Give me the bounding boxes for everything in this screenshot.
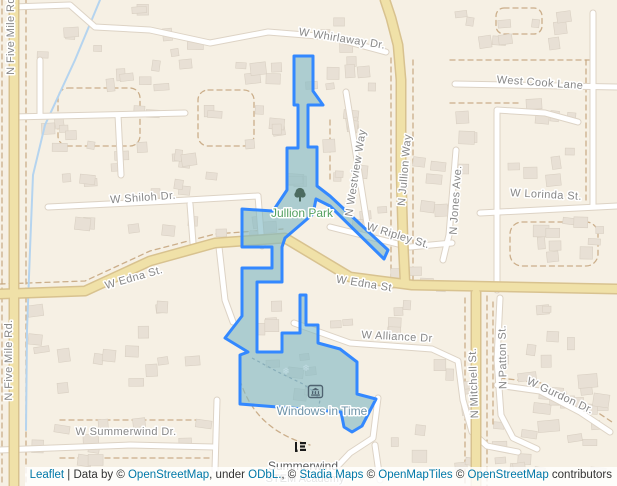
- building: [541, 355, 551, 367]
- building: [546, 251, 559, 262]
- building: [62, 173, 71, 182]
- building: [330, 321, 341, 329]
- building: [129, 378, 144, 386]
- building: [583, 439, 597, 445]
- building: [455, 10, 467, 18]
- building: [27, 304, 43, 317]
- attribution-link[interactable]: OpenMapTiles: [378, 469, 452, 481]
- building: [531, 19, 539, 28]
- attribution-link[interactable]: Stadia Maps: [299, 469, 363, 481]
- poi-label: Windows in Time: [277, 404, 368, 418]
- building: [52, 143, 67, 152]
- building: [179, 59, 192, 69]
- street-label: N Mitchell St.: [467, 348, 481, 419]
- building: [138, 326, 149, 338]
- building: [549, 241, 561, 251]
- building: [551, 156, 561, 170]
- building: [132, 6, 147, 13]
- attribution-text: contributors: [549, 469, 612, 481]
- building: [174, 179, 184, 190]
- building: [388, 317, 401, 327]
- building: [413, 157, 426, 168]
- building: [578, 374, 598, 389]
- building: [327, 67, 339, 79]
- building: [434, 204, 448, 217]
- attribution-link[interactable]: OpenStreetMap: [468, 469, 549, 481]
- building: [498, 34, 513, 45]
- building: [106, 78, 115, 91]
- building: [64, 27, 79, 38]
- building: [181, 153, 197, 167]
- attribution-text: | Data by ©: [64, 469, 128, 481]
- building: [565, 148, 574, 155]
- attribution-text: , under: [209, 469, 248, 481]
- building: [28, 334, 43, 346]
- building: [498, 20, 511, 29]
- building: [79, 174, 95, 185]
- building: [542, 306, 551, 312]
- building: [537, 237, 545, 250]
- building: [250, 62, 267, 76]
- building: [157, 301, 168, 313]
- building: [426, 174, 442, 185]
- building: [151, 60, 160, 72]
- building: [125, 346, 139, 358]
- building: [334, 18, 345, 26]
- building: [154, 83, 170, 91]
- building: [547, 331, 559, 342]
- street-label: N Five Mile Rd.: [3, 319, 15, 400]
- building: [357, 66, 370, 78]
- building: [546, 228, 560, 237]
- building: [563, 217, 575, 225]
- poi-label: Jullion Park: [271, 206, 334, 220]
- building: [368, 83, 376, 91]
- building: [266, 73, 281, 84]
- school-icon: [295, 442, 306, 452]
- building: [508, 163, 520, 170]
- building: [157, 357, 168, 366]
- building: [265, 320, 279, 332]
- building: [345, 64, 355, 78]
- building: [206, 172, 218, 180]
- building: [580, 247, 593, 260]
- building: [526, 344, 536, 356]
- street-label: N Five Mile Rd: [5, 0, 17, 75]
- building: [326, 83, 335, 90]
- building: [258, 323, 265, 335]
- attribution-link[interactable]: OpenStreetMap: [128, 469, 209, 481]
- building: [533, 402, 551, 414]
- building: [245, 139, 255, 149]
- building: [271, 63, 282, 73]
- building: [588, 238, 601, 245]
- building: [567, 337, 574, 349]
- building: [137, 142, 148, 153]
- building: [128, 224, 140, 234]
- attribution-text: ©: [363, 469, 378, 481]
- building: [57, 382, 68, 393]
- road: [215, 400, 217, 470]
- svg-text:❄: ❄: [282, 366, 290, 376]
- building: [556, 11, 571, 24]
- attribution-bar: Leaflet | Data by © OpenStreetMap, under…: [25, 467, 617, 486]
- building: [170, 48, 179, 56]
- building: [272, 124, 281, 134]
- building: [456, 111, 469, 124]
- building: [403, 300, 411, 310]
- building: [335, 171, 343, 178]
- building: [120, 73, 134, 82]
- building: [434, 359, 446, 370]
- building: [495, 457, 506, 464]
- building: [146, 364, 158, 377]
- building: [93, 45, 101, 51]
- map-canvas[interactable]: ❄ ❄ W Whirlaway Dr.West Cook LaneW Shi: [0, 0, 617, 486]
- attribution-link[interactable]: Leaflet: [30, 469, 65, 481]
- building: [430, 161, 446, 171]
- building: [574, 217, 588, 228]
- building: [545, 174, 561, 187]
- building: [236, 62, 247, 69]
- building: [548, 37, 560, 50]
- building: [88, 454, 103, 465]
- building: [255, 106, 264, 115]
- street-label: N Patton St.: [496, 325, 509, 389]
- building: [271, 301, 282, 311]
- building: [216, 229, 227, 237]
- building: [102, 349, 116, 362]
- building: [207, 110, 222, 118]
- building: [162, 225, 176, 237]
- building: [412, 450, 427, 462]
- building: [409, 267, 421, 276]
- attribution-text: ©: [453, 469, 468, 481]
- building: [378, 206, 387, 213]
- building: [391, 438, 398, 447]
- building: [526, 99, 542, 110]
- building: [446, 369, 454, 381]
- building: [394, 307, 403, 315]
- building: [415, 425, 426, 436]
- road: [190, 204, 193, 243]
- building: [478, 35, 492, 49]
- building: [420, 200, 435, 213]
- building: [323, 139, 336, 152]
- road: [118, 115, 121, 175]
- building: [466, 17, 474, 26]
- attribution-text: , ©: [281, 469, 299, 481]
- map[interactable]: ❄ ❄ W Whirlaway Dr.West Cook LaneW Shi: [0, 0, 617, 486]
- building: [57, 348, 70, 362]
- building: [524, 167, 538, 178]
- street-label: W Summerwind Dr.: [75, 426, 176, 438]
- building: [185, 356, 200, 366]
- svg-text:❄: ❄: [302, 363, 310, 373]
- building: [538, 419, 560, 432]
- building: [139, 77, 151, 85]
- building: [65, 130, 76, 139]
- building: [596, 226, 604, 233]
- building: [74, 217, 91, 231]
- building: [343, 319, 353, 326]
- attribution-link[interactable]: ODbL.: [248, 469, 281, 481]
- building: [87, 141, 95, 150]
- building: [459, 131, 475, 145]
